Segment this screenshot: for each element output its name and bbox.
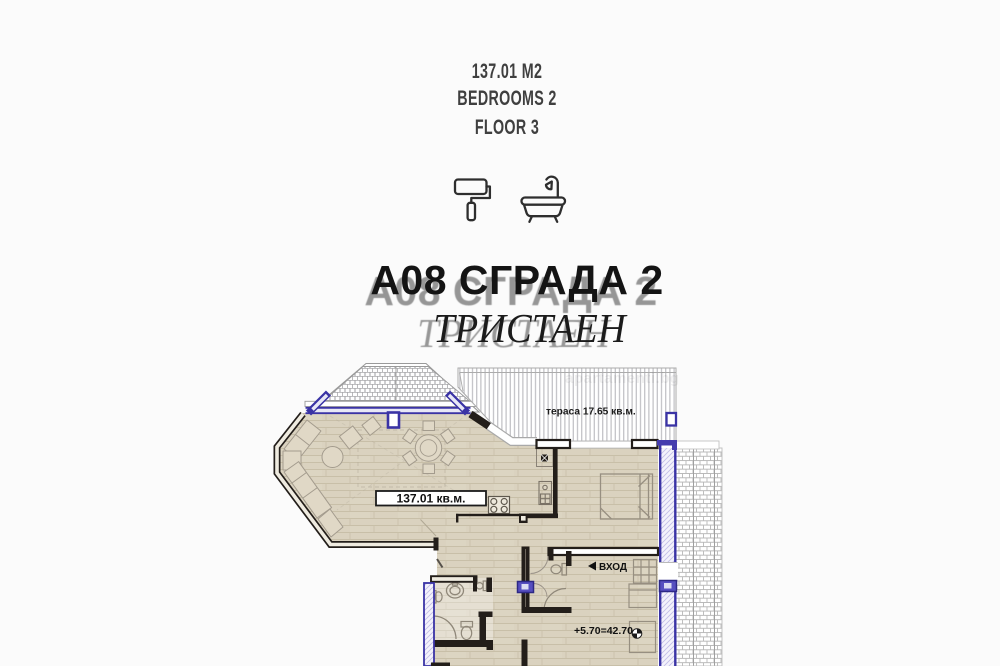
- svg-text:+5.70=42.70: +5.70=42.70: [574, 625, 633, 637]
- svg-text:ВХОД: ВХОД: [599, 562, 627, 573]
- svg-text:apartamenti.bg: apartamenti.bg: [565, 370, 680, 387]
- svg-text:тераса 17.65 кв.м.: тераса 17.65 кв.м.: [546, 407, 636, 418]
- svg-text:137.01 кв.м.: 137.01 кв.м.: [397, 492, 466, 506]
